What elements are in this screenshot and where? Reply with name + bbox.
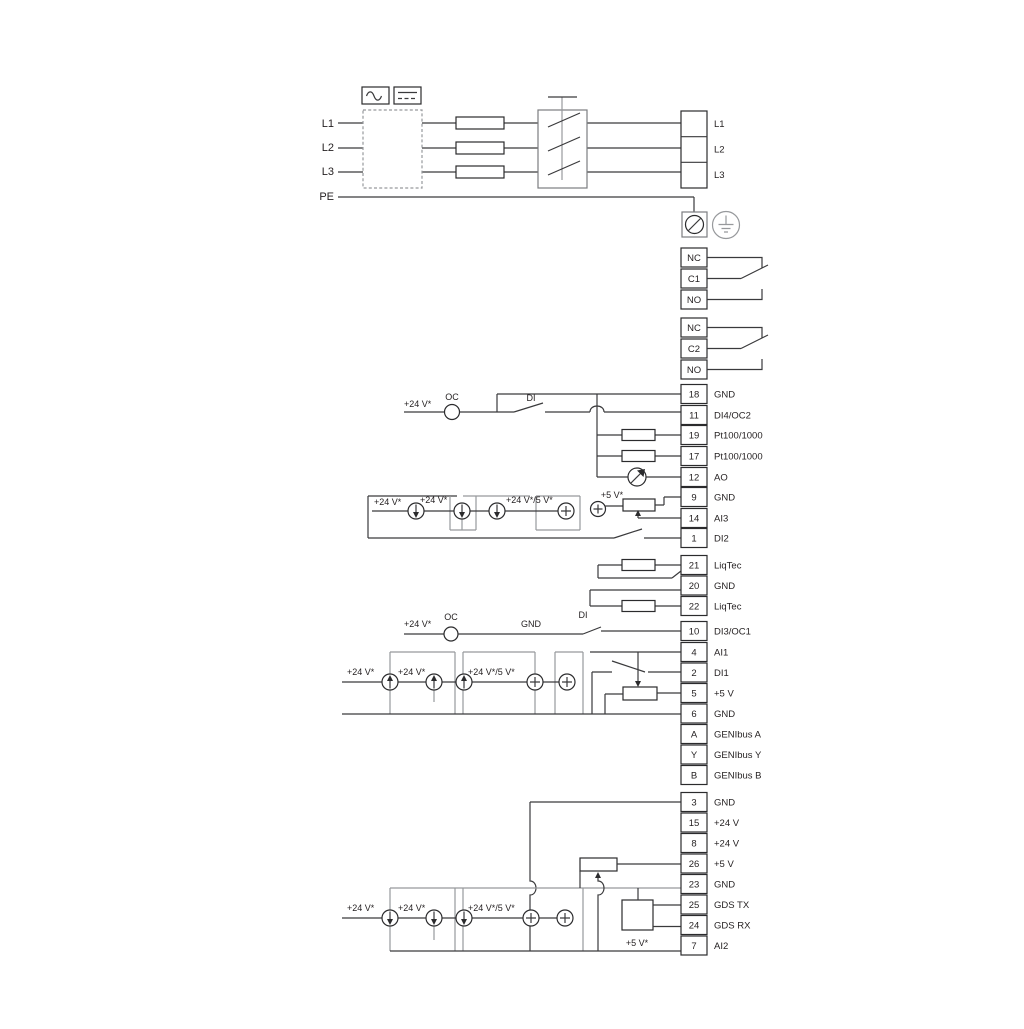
terminal-label: GENIbus B [714, 771, 762, 782]
liqtec-sensor-2 [622, 601, 655, 612]
open-collector-icon [444, 627, 458, 641]
io-bottom-block: 3 15 8 26 23 25 24 7 GND +24 V +24 V +5 … [681, 793, 751, 956]
io-top-block: 18 11 19 17 12 9 14 1 GND DI4/OC2 Pt100/… [681, 385, 763, 548]
terminal-num: 7 [691, 941, 696, 952]
label-di3: DI [579, 610, 588, 620]
voltage-source-icon [558, 503, 574, 519]
liqtec-sensor-1 [622, 560, 655, 571]
terminal-label: DI2 [714, 534, 729, 545]
mains-label-l2: L2 [322, 142, 334, 154]
earth-icon [713, 212, 740, 239]
terminal-label: AI1 [714, 648, 728, 659]
terminal-num: 14 [689, 514, 700, 525]
pe-terminal-icon [682, 212, 707, 237]
liqtec-wires [590, 560, 681, 612]
terminal-label: DI3/OC1 [714, 627, 751, 638]
ai1-options: +24 V* +24 V* +24 V*/5 V* [342, 652, 681, 714]
label-di4: DI [527, 393, 536, 403]
terminal-num: 5 [691, 689, 696, 700]
liqtec-block: 21 20 22 LiqTec GND LiqTec [681, 556, 742, 616]
label-24v-oc1: +24 V* [404, 399, 432, 409]
terminal-num: 3 [691, 798, 696, 809]
terminal-label: +24 V [714, 839, 740, 850]
terminal-num: 24 [689, 921, 700, 932]
gds-sensor-box [622, 900, 653, 930]
terminal-label: GND [714, 798, 735, 809]
terminal-num: 15 [689, 818, 700, 829]
terminal-label: +5 V [714, 859, 734, 870]
io-mid-wires: +24 V* OC GND DI +24 V* +24 V* +24 V*/5 … [342, 610, 681, 714]
terminal-num: 22 [689, 602, 700, 613]
terminal-label: LiqTec [714, 561, 742, 572]
relay1-block: NC C1 NO [681, 248, 768, 309]
terminal-label: GENIbus A [714, 730, 762, 741]
potentiometer-ai2 [580, 858, 617, 871]
potentiometer-ai3 [623, 499, 655, 511]
terminal-label: AI3 [714, 514, 728, 525]
terminal-num: 12 [689, 473, 700, 484]
relay1-contact [707, 258, 768, 300]
terminal-num: 10 [689, 627, 700, 638]
terminal-num: A [691, 730, 698, 741]
relay2-c2: C2 [688, 344, 700, 355]
terminal-label: GENIbus Y [714, 750, 762, 761]
ac-symbol-icon [362, 87, 389, 104]
terminal-num: 20 [689, 581, 700, 592]
current-source-icon [382, 910, 398, 926]
wiring-diagram: L1 L2 L3 PE [0, 0, 1024, 1024]
terminal-num: 23 [689, 880, 700, 891]
current-source-icon [408, 503, 424, 519]
terminal-label: AI2 [714, 941, 728, 952]
resistor-pt100-1 [622, 430, 655, 441]
label-24v-a: +24 V* [347, 667, 375, 677]
current-source-icon [426, 674, 442, 690]
mains-output-terminal-block [681, 111, 707, 188]
label-24v-5v: +24 V*/5 V* [506, 495, 553, 505]
label-24v-5v: +24 V*/5 V* [468, 903, 515, 913]
relay2-contact [707, 328, 768, 370]
label-24v-b: +24 V* [398, 903, 426, 913]
filter-box [363, 110, 422, 188]
terminal-label: GDS RX [714, 921, 751, 932]
label-5v-gds: +5 V* [626, 938, 649, 948]
terminal-label: LiqTec [714, 602, 742, 613]
terminal-num: 6 [691, 709, 696, 720]
terminal-num: 1 [691, 534, 696, 545]
label-oc2: OC [444, 612, 458, 622]
fuse-l3 [456, 166, 504, 178]
current-source-icon [454, 503, 470, 519]
mains-out-label-l2: L2 [714, 145, 725, 156]
terminal-label: DI1 [714, 668, 729, 679]
voltage-source-icon [559, 674, 575, 690]
terminal-label: DI4/OC2 [714, 411, 751, 422]
open-collector-icon [445, 405, 460, 420]
terminal-label: GND [714, 709, 735, 720]
fuse-l1 [456, 117, 504, 129]
voltage-source-icon [591, 502, 606, 517]
mains-wires [338, 123, 694, 212]
mains-label-pe: PE [319, 191, 334, 203]
label-24v-b: +24 V* [398, 667, 426, 677]
current-source-icon [489, 503, 505, 519]
resistor-pt100-2 [622, 451, 655, 462]
terminal-label: GND [714, 880, 735, 891]
dc-symbol-icon [394, 87, 421, 104]
terminal-label: GND [714, 581, 735, 592]
mains-label-l3: L3 [322, 166, 334, 178]
di2-switch-wire [368, 529, 681, 538]
relay1-c1: C1 [688, 274, 700, 285]
fuse-l2 [456, 142, 504, 154]
relay1-no: NO [687, 295, 701, 306]
wiper-arrow-up [595, 872, 601, 878]
terminal-num: B [691, 771, 697, 782]
relay2-no: NO [687, 365, 701, 376]
terminal-num: 21 [689, 561, 700, 572]
wiring-diagram-page: L1 L2 L3 PE [0, 0, 1024, 1024]
terminal-label: +24 V [714, 818, 740, 829]
potentiometer-ai1 [623, 687, 657, 700]
label-24v-oc2: +24 V* [404, 619, 432, 629]
terminal-num: 26 [689, 859, 700, 870]
terminal-label: Pt100/1000 [714, 431, 763, 442]
terminal-label: GND [714, 390, 735, 401]
terminal-label: AO [714, 473, 728, 484]
terminal-num: Y [691, 750, 698, 761]
current-source-icon [426, 910, 442, 926]
mains-out-label-l1: L1 [714, 119, 725, 130]
current-source-icon [456, 910, 472, 926]
terminal-label: GND [714, 493, 735, 504]
terminal-num: 19 [689, 431, 700, 442]
main-switch [538, 97, 587, 188]
label-24v-5v: +24 V*/5 V* [468, 667, 515, 677]
relay1-nc: NC [687, 253, 701, 264]
mains-label-l1: L1 [322, 118, 334, 130]
voltage-source-icon [527, 674, 543, 690]
terminal-num: 8 [691, 839, 696, 850]
terminal-num: 9 [691, 493, 696, 504]
current-source-icon [382, 674, 398, 690]
current-source-icon [456, 674, 472, 690]
ai3-options: +24 V* +24 V* +24 V*/5 V* +5 V* [368, 490, 681, 538]
terminal-label: Pt100/1000 [714, 452, 763, 463]
voltage-source-icon [557, 910, 573, 926]
label-24v-a: +24 V* [347, 903, 375, 913]
mains-out-label-l3: L3 [714, 170, 725, 181]
label-24v-b: +24 V* [420, 495, 448, 505]
label-oc1: OC [445, 392, 459, 402]
terminal-num: 25 [689, 900, 700, 911]
label-24v-a: +24 V* [374, 497, 402, 507]
io-top-wires: +24 V* OC DI +24 V* +24 V* +24 V*/5 V* [368, 392, 681, 538]
analog-output-meter-icon [628, 468, 646, 486]
relay2-nc: NC [687, 323, 701, 334]
label-gnd-oc2: GND [521, 619, 542, 629]
voltage-source-icon [523, 910, 539, 926]
wiper-arrow-down [635, 681, 641, 687]
relay2-block: NC C2 NO [681, 318, 768, 379]
mains-section: L1 L2 L3 PE [319, 87, 739, 239]
terminal-num: 17 [689, 452, 700, 463]
terminal-num: 11 [689, 411, 699, 422]
terminal-label: GDS TX [714, 900, 750, 911]
io-bottom-wires: +24 V* +24 V* +24 V*/5 V* +5 V* [342, 802, 681, 951]
label-5v-ai3: +5 V* [601, 490, 624, 500]
io-mid-block: 10 4 2 5 6 A Y B DI3/OC1 AI1 DI1 +5 V GN… [681, 622, 762, 785]
terminal-num: 4 [691, 648, 696, 659]
terminal-label: +5 V [714, 689, 734, 700]
terminal-num: 2 [691, 668, 696, 679]
terminal-num: 18 [689, 390, 700, 401]
